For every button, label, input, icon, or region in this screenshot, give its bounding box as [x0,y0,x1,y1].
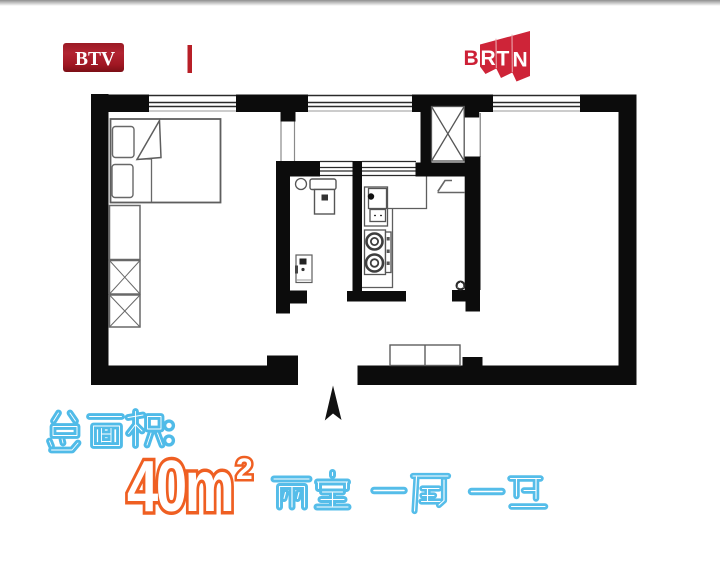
svg-text:N: N [513,49,528,72]
svg-text:2: 2 [236,453,253,486]
svg-text:B: B [464,47,479,70]
svg-text:T: T [497,48,510,71]
svg-text:R: R [481,47,496,70]
svg-text:40m: 40m [127,446,232,526]
svg-text:BTV: BTV [75,49,115,70]
